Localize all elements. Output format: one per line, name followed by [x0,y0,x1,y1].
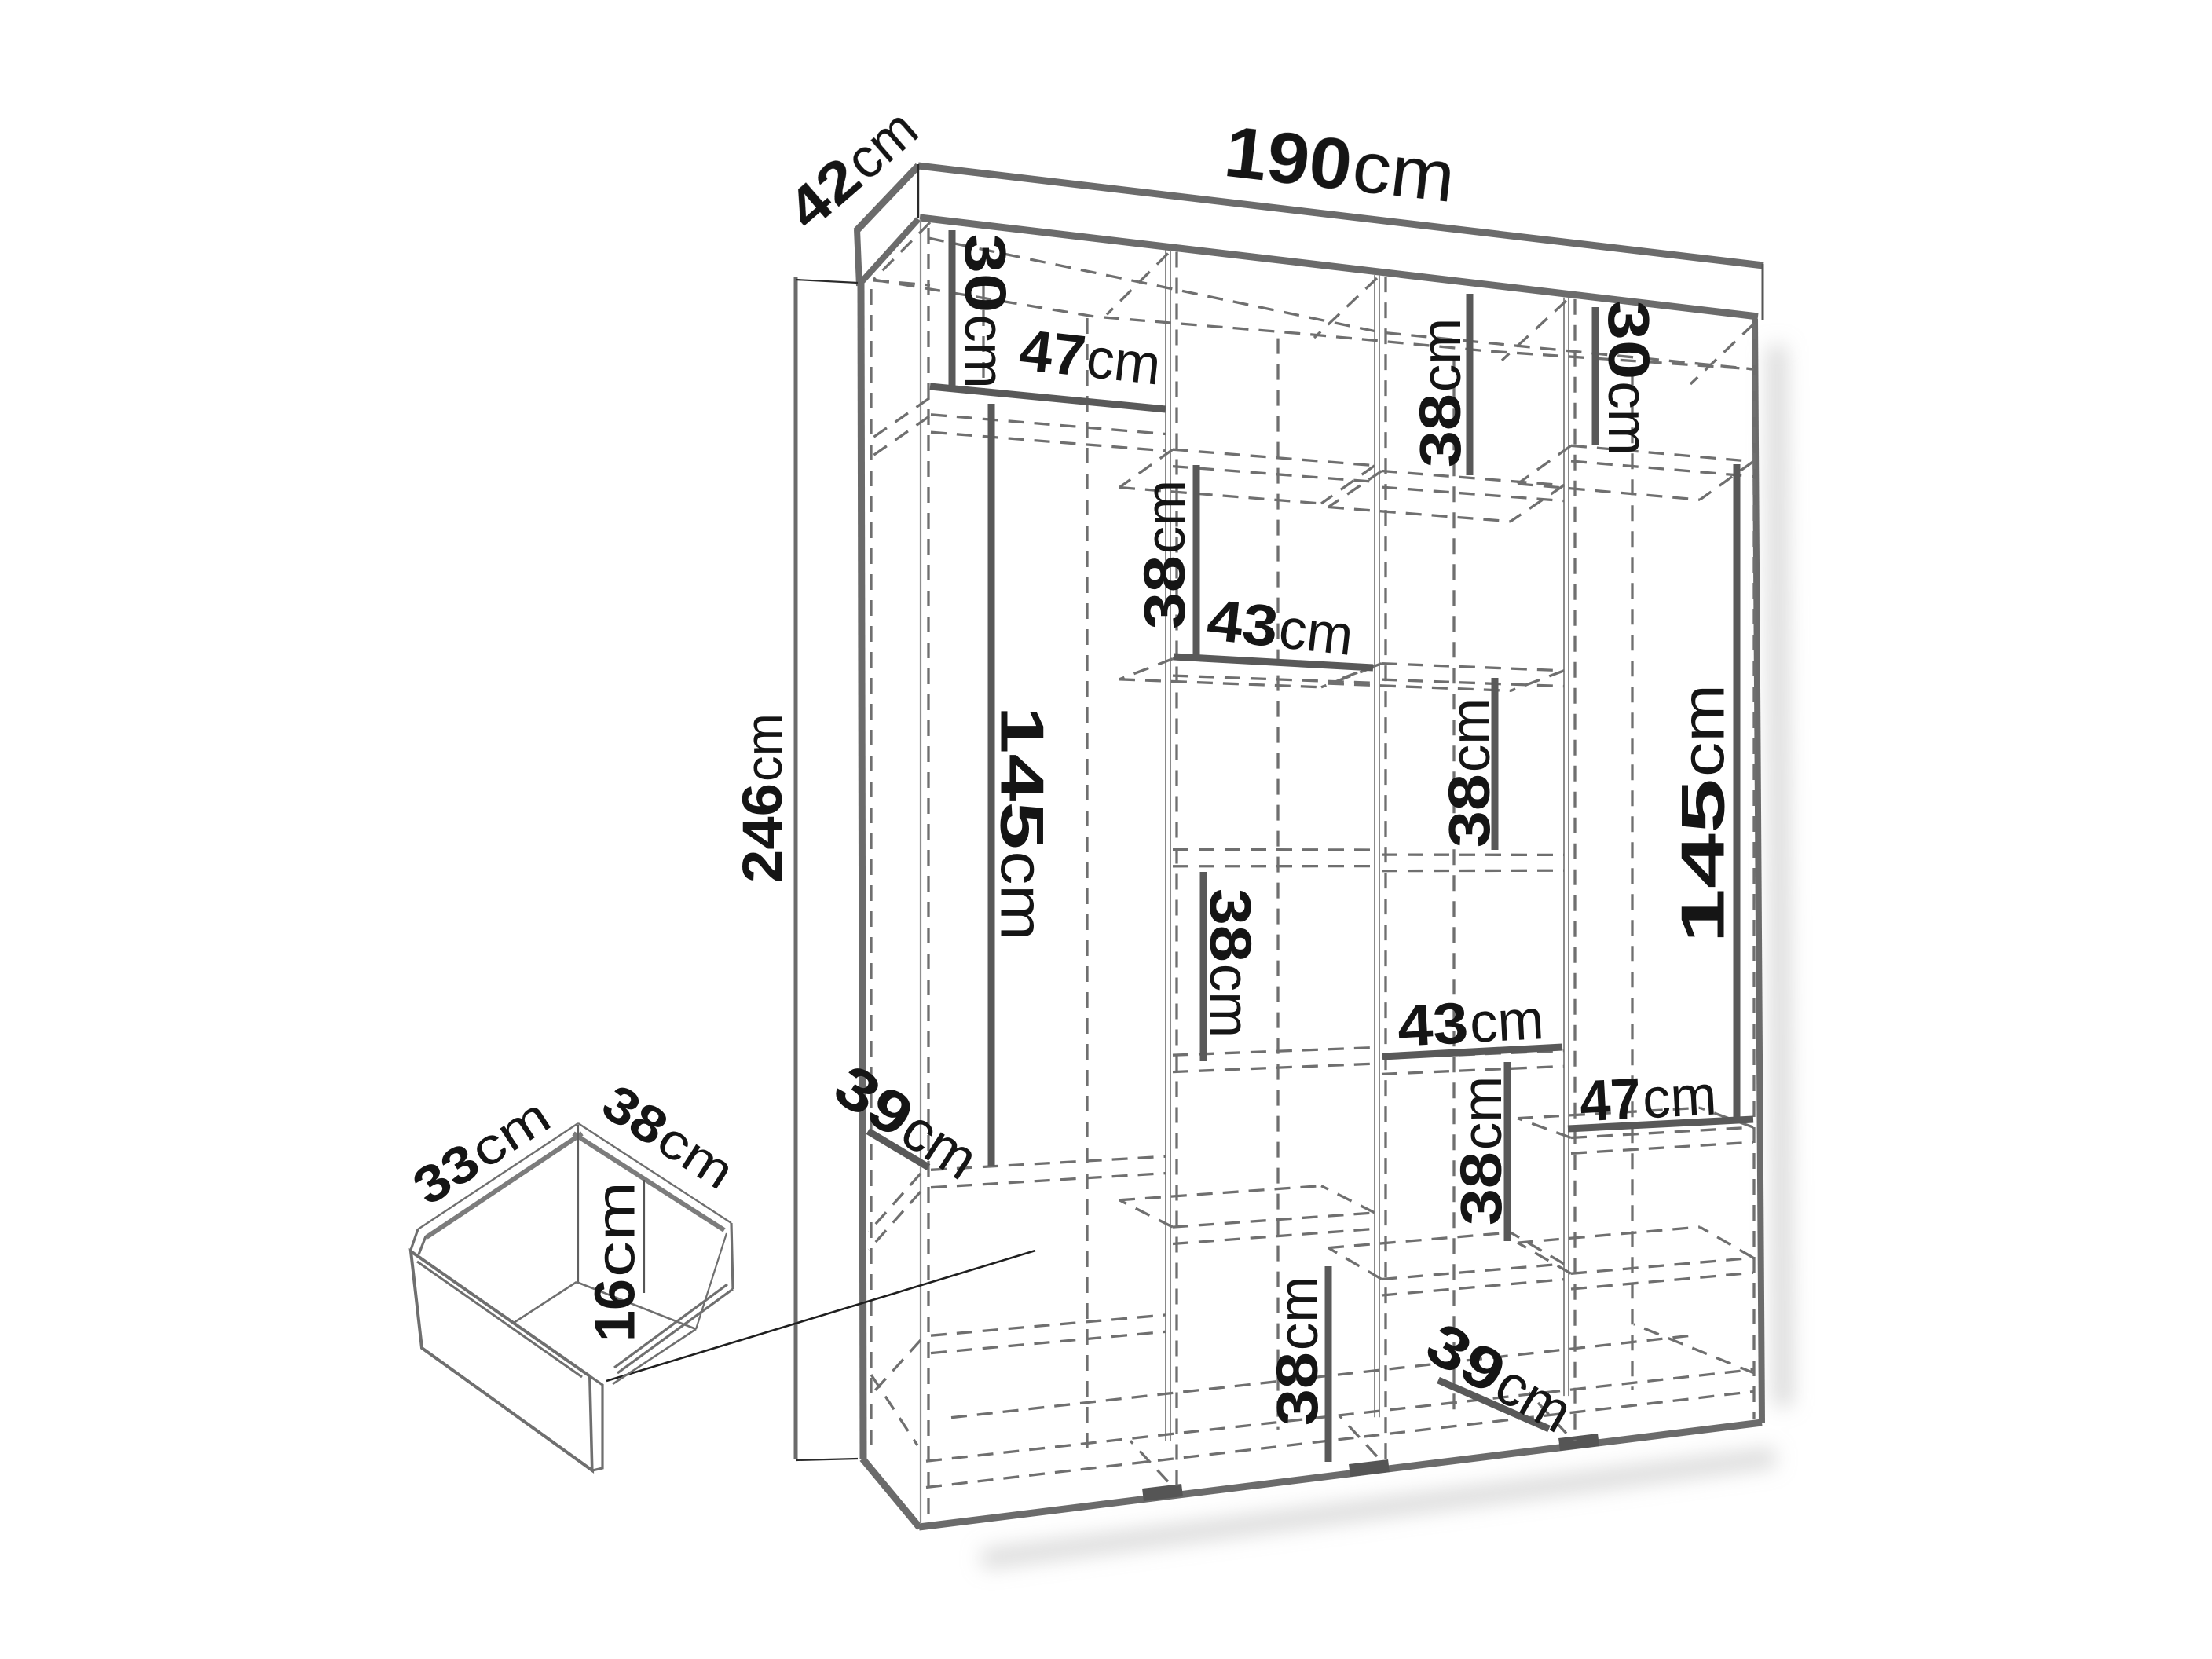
svg-text:cm: cm [988,851,1056,941]
svg-text:cm: cm [1596,381,1659,455]
svg-text:cm: cm [1670,684,1738,777]
svg-text:cm: cm [1451,1076,1514,1150]
svg-text:cm: cm [953,314,1016,388]
svg-text:cm: cm [1439,698,1502,772]
svg-text:38: 38 [1448,1152,1514,1225]
svg-text:cm: cm [1134,480,1197,554]
svg-text:cm: cm [1641,1064,1718,1130]
svg-text:47: 47 [1578,1066,1643,1134]
svg-text:43: 43 [1204,587,1282,659]
svg-text:30: 30 [1596,300,1661,379]
svg-text:cm: cm [1267,1276,1330,1350]
svg-text:145: 145 [1668,778,1738,943]
svg-text:cm: cm [1276,597,1356,668]
svg-text:38: 38 [1408,394,1473,467]
svg-text:cm: cm [1468,988,1545,1055]
svg-text:cm: cm [1198,964,1261,1038]
svg-text:16: 16 [584,1279,646,1342]
svg-text:38: 38 [1437,774,1502,848]
svg-text:30: 30 [953,233,1018,313]
svg-text:190: 190 [1221,112,1357,206]
svg-text:cm: cm [1083,327,1163,397]
svg-text:cm: cm [1349,126,1459,218]
svg-text:cm: cm [584,1181,646,1277]
svg-text:246: 246 [732,783,794,883]
svg-text:38: 38 [1198,888,1263,962]
svg-text:cm: cm [1410,318,1473,392]
svg-text:47: 47 [1016,317,1090,389]
svg-text:43: 43 [1396,990,1470,1059]
svg-text:38: 38 [1132,555,1197,629]
svg-text:38: 38 [1265,1352,1330,1426]
svg-text:cm: cm [734,713,793,782]
svg-text:145: 145 [988,706,1057,850]
